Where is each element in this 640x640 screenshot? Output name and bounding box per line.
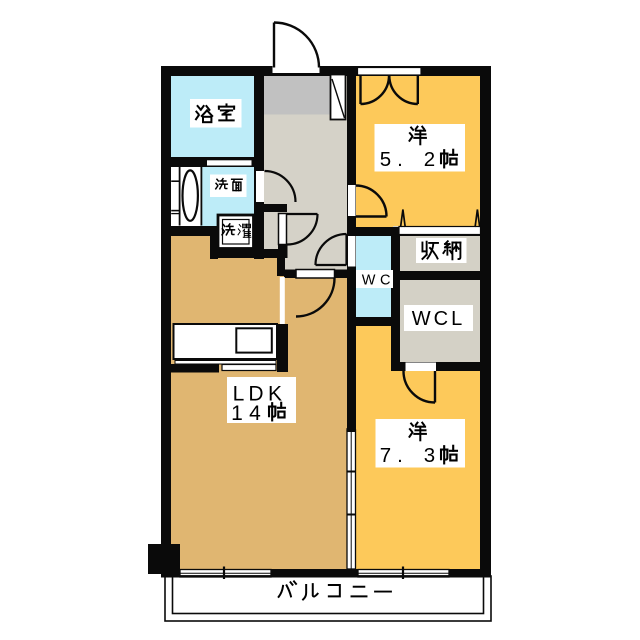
svg-text:5: 5 [380, 148, 391, 171]
svg-text:1: 1 [231, 402, 243, 425]
svg-text:.: . [397, 444, 403, 467]
svg-text:3: 3 [424, 444, 435, 467]
svg-text:.: . [397, 148, 403, 171]
svg-text:2: 2 [424, 148, 435, 171]
svg-text:C: C [380, 273, 390, 289]
svg-text:W: W [362, 273, 376, 289]
svg-text:WCL: WCL [412, 308, 465, 330]
svg-text:7: 7 [380, 444, 391, 467]
svg-text:K: K [268, 383, 282, 406]
svg-text:4: 4 [249, 402, 261, 425]
